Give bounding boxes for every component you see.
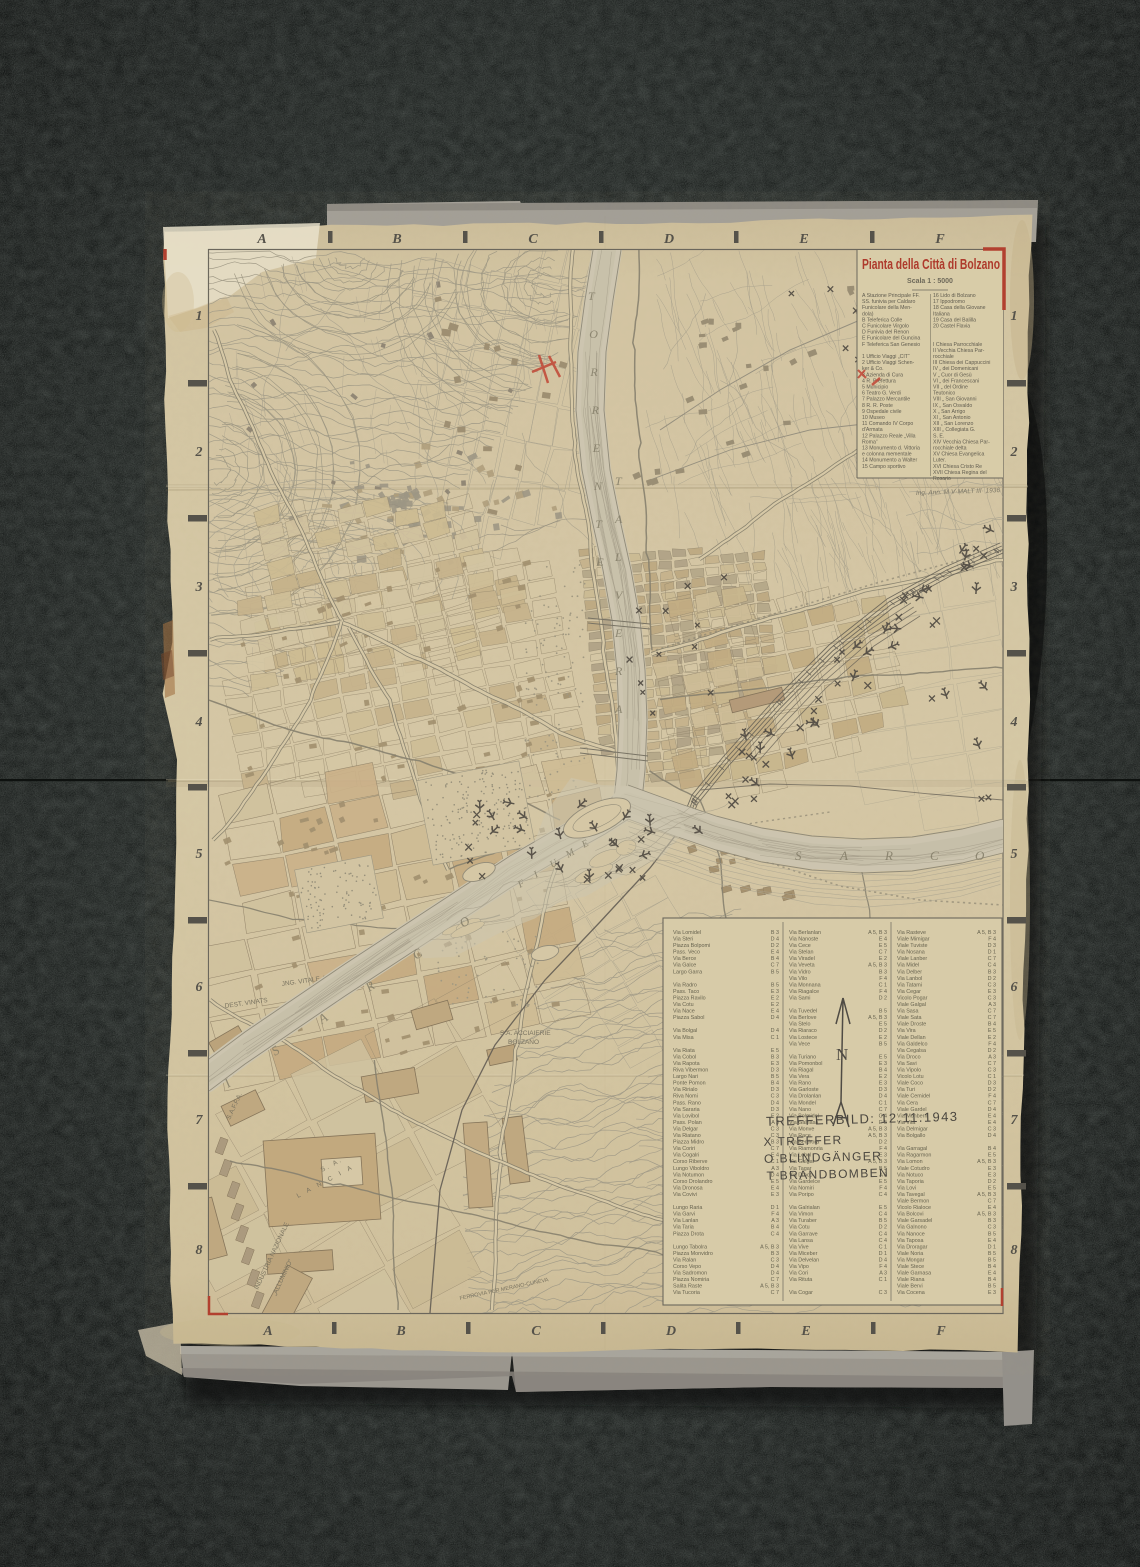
svg-text:C 1: C 1	[879, 982, 887, 988]
svg-text:Via Tucoria: Via Tucoria	[673, 1290, 700, 1296]
svg-text:D 2: D 2	[988, 1048, 996, 1054]
svg-text:E 5: E 5	[988, 1153, 996, 1159]
svg-text:C 4: C 4	[988, 963, 996, 969]
svg-text:Viale Lanber: Viale Lanber	[897, 956, 927, 962]
svg-text:Piazza Monvidro: Piazza Monvidro	[673, 1251, 713, 1257]
svg-text:E 3: E 3	[988, 1290, 996, 1296]
svg-text:Via Garvi: Via Garvi	[673, 1212, 695, 1218]
svg-text:D 1: D 1	[988, 1244, 996, 1250]
svg-text:2: 2	[1010, 445, 1018, 460]
svg-text:C 1: C 1	[879, 1100, 887, 1106]
svg-text:E 4: E 4	[771, 1185, 779, 1191]
svg-text:E 4: E 4	[988, 1205, 996, 1211]
svg-text:Via Veveta: Via Veveta	[789, 963, 815, 969]
svg-text:D 4: D 4	[771, 1015, 779, 1021]
svg-text:Via Lovibol: Via Lovibol	[673, 1113, 699, 1119]
svg-text:E 4: E 4	[988, 1120, 996, 1126]
svg-text:14 Monumento a Walter: 14 Monumento a Walter	[862, 458, 917, 464]
svg-text:Salita Raste: Salita Raste	[673, 1284, 702, 1290]
svg-text:Via Monnana: Via Monnana	[789, 982, 821, 988]
svg-text:6: 6	[1011, 980, 1018, 995]
svg-text:8: 8	[196, 1243, 203, 1258]
svg-text:A: A	[262, 1324, 272, 1339]
svg-text:Via Cogar: Via Cogar	[789, 1290, 813, 1296]
svg-text:Via Lostece: Via Lostece	[789, 1035, 817, 1041]
svg-text:E 3: E 3	[771, 1192, 779, 1198]
svg-text:B 5: B 5	[879, 1041, 887, 1047]
svg-text:1 Ufficio Viaggi „CIT“: 1 Ufficio Viaggi „CIT“	[862, 354, 910, 360]
svg-text:Funicolare della Men-: Funicolare della Men-	[862, 305, 912, 311]
svg-text:Via Steri: Via Steri	[673, 937, 693, 943]
svg-text:E 5: E 5	[879, 1205, 887, 1211]
svg-text:D 2: D 2	[988, 1087, 996, 1093]
svg-text:F 4: F 4	[771, 1212, 779, 1218]
svg-text:18 Casa della Giovane: 18 Casa della Giovane	[933, 305, 986, 311]
svg-text:E 3: E 3	[771, 1061, 779, 1067]
svg-text:Via Vipolo: Via Vipolo	[897, 1068, 921, 1074]
svg-text:Via Galnono: Via Galnono	[897, 1225, 927, 1231]
svg-text:D 4: D 4	[771, 1100, 779, 1106]
svg-text:Via Cobol: Via Cobol	[673, 1054, 696, 1060]
svg-text:C Funicolare Virgolo: C Funicolare Virgolo	[862, 324, 909, 330]
svg-text:D 2: D 2	[988, 976, 996, 982]
svg-text:Via Dronosa: Via Dronosa	[673, 1185, 703, 1191]
svg-text:D 1: D 1	[879, 1251, 887, 1257]
svg-text:Via Pomonbol: Via Pomonbol	[789, 1061, 822, 1067]
svg-text:D 1: D 1	[771, 1205, 779, 1211]
svg-text:Via Cocena: Via Cocena	[897, 1290, 925, 1296]
svg-text:Via Notumon: Via Notumon	[673, 1172, 704, 1178]
svg-text:Via Cegalsa: Via Cegalsa	[897, 1048, 926, 1054]
svg-text:Pass. Rano: Pass. Rano	[673, 1100, 701, 1106]
svg-text:9 Ospedale civile: 9 Ospedale civile	[862, 409, 902, 415]
svg-text:dola): dola)	[862, 311, 874, 317]
svg-text:C 1: C 1	[771, 1035, 779, 1041]
svg-text:C 7: C 7	[988, 1100, 996, 1106]
svg-text:Scala 1 : 5000: Scala 1 : 5000	[907, 278, 953, 285]
svg-text:Via Garragal: Via Garragal	[897, 1146, 927, 1152]
svg-text:Via Cori: Via Cori	[789, 1271, 808, 1277]
svg-text:Viale Dellan: Viale Dellan	[897, 1035, 926, 1041]
svg-text:D 2: D 2	[879, 1028, 887, 1034]
svg-text:Via Vece: Via Vece	[789, 1041, 810, 1047]
svg-text:XVII Chiesa Regina del: XVII Chiesa Regina del	[933, 470, 987, 476]
svg-text:D 2: D 2	[879, 1140, 887, 1146]
svg-text:C 7: C 7	[879, 950, 887, 956]
svg-text:A 5, B 3: A 5, B 3	[868, 963, 887, 969]
svg-text:Piazza Ravilo: Piazza Ravilo	[673, 996, 706, 1002]
svg-text:16 Lido di Bolzano: 16 Lido di Bolzano	[933, 293, 976, 299]
svg-text:D 2: D 2	[879, 1225, 887, 1231]
svg-text:Via Miceber: Via Miceber	[789, 1251, 818, 1257]
svg-text:Piazza Drota: Piazza Drota	[673, 1231, 704, 1237]
svg-text:III Chiesa dei Cappuccini: III Chiesa dei Cappuccini	[933, 360, 990, 366]
svg-text:I Chiesa Parrocchiale: I Chiesa Parrocchiale	[933, 342, 982, 348]
svg-text:Piazza Midro: Piazza Midro	[673, 1140, 704, 1146]
svg-text:E 4: E 4	[988, 1238, 996, 1244]
svg-text:D Funivia del Renon: D Funivia del Renon	[862, 330, 909, 336]
svg-text:Via Rapota: Via Rapota	[673, 1061, 700, 1067]
svg-text:Via Taria: Via Taria	[673, 1225, 694, 1231]
svg-text:A 5, B 3: A 5, B 3	[868, 1015, 887, 1021]
svg-text:F: F	[934, 232, 945, 247]
svg-text:C 7: C 7	[988, 956, 996, 962]
svg-text:XIV Vecchia Chiesa Par-: XIV Vecchia Chiesa Par-	[933, 439, 990, 445]
svg-text:Via Lanlan: Via Lanlan	[673, 1218, 698, 1224]
svg-text:Via Rano: Via Rano	[789, 1081, 811, 1087]
svg-text:F 4: F 4	[988, 1094, 996, 1100]
svg-text:8: 8	[1011, 1243, 1018, 1258]
svg-text:5 Municipio: 5 Municipio	[862, 385, 888, 391]
svg-text:C: C	[528, 232, 538, 247]
svg-text:XV Chiesa Evangelica: XV Chiesa Evangelica	[933, 452, 984, 458]
svg-text:D 4: D 4	[879, 1258, 887, 1264]
svg-text:2: 2	[195, 445, 203, 460]
svg-text:Via Vimon: Via Vimon	[789, 1212, 813, 1218]
svg-text:E: E	[798, 232, 808, 247]
svg-text:C 3: C 3	[988, 1127, 996, 1133]
svg-text:Via Delgar: Via Delgar	[673, 1127, 698, 1133]
svg-text:Via Vipo: Via Vipo	[789, 1264, 809, 1270]
svg-text:Riva Vibermon: Riva Vibermon	[673, 1068, 708, 1074]
svg-text:Via Ralan: Via Ralan	[673, 1258, 696, 1264]
svg-text:C 3: C 3	[771, 1094, 779, 1100]
svg-text:E 4: E 4	[988, 1271, 996, 1277]
svg-text:Viale Cotudro: Viale Cotudro	[897, 1166, 930, 1172]
svg-text:D 2: D 2	[879, 996, 887, 1002]
svg-text:2 Ufficio Viaggi Schen-: 2 Ufficio Viaggi Schen-	[862, 360, 915, 366]
svg-text:S. E.: S. E.	[933, 433, 944, 439]
svg-text:E 3: E 3	[879, 1081, 887, 1087]
svg-text:E: E	[800, 1324, 810, 1339]
svg-text:Via Vilo: Via Vilo	[789, 976, 807, 982]
svg-text:4: 4	[195, 715, 203, 730]
svg-text:Via Lomidel: Via Lomidel	[673, 930, 701, 936]
svg-text:Via Savi: Via Savi	[897, 1061, 917, 1067]
svg-text:C: C	[531, 1324, 541, 1339]
svg-text:Via Galrialan: Via Galrialan	[789, 1205, 820, 1211]
svg-text:Corso Vepo: Corso Vepo	[673, 1264, 701, 1270]
svg-text:XVI Chiesa Cristo Re: XVI Chiesa Cristo Re	[933, 464, 982, 470]
svg-text:Via Rasteve: Via Rasteve	[897, 930, 926, 936]
svg-text:Via Berlove: Via Berlove	[789, 1015, 816, 1021]
svg-text:Via Ragarmon: Via Ragarmon	[897, 1153, 931, 1159]
svg-text:Via Riaraco: Via Riaraco	[789, 1028, 817, 1034]
svg-text:C 3: C 3	[771, 1258, 779, 1264]
svg-text:Via Cogalri: Via Cogalri	[673, 1153, 699, 1159]
svg-text:20 Castel Flavia: 20 Castel Flavia	[933, 324, 970, 330]
svg-text:Via Mongar: Via Mongar	[897, 1258, 925, 1264]
svg-text:B 5: B 5	[879, 1009, 887, 1015]
svg-text:Lungo Raria: Lungo Raria	[673, 1205, 702, 1211]
svg-text:SS. funivia per Caldaro: SS. funivia per Caldaro	[862, 299, 915, 305]
svg-text:C 4: C 4	[879, 1212, 887, 1218]
svg-text:Via Sami: Via Sami	[789, 996, 810, 1002]
svg-text:E 2: E 2	[771, 1002, 779, 1008]
svg-text:Via Taporia: Via Taporia	[897, 1179, 924, 1185]
svg-text:Via Lanbol: Via Lanbol	[897, 976, 922, 982]
svg-text:C 3: C 3	[879, 1290, 887, 1296]
svg-text:Via Lovi: Via Lovi	[897, 1185, 916, 1191]
svg-text:VIII „ San Giovanni: VIII „ San Giovanni	[933, 397, 977, 403]
svg-text:3: 3	[1010, 580, 1018, 595]
svg-text:B 3: B 3	[988, 969, 996, 975]
svg-text:rocchiale delta: rocchiale delta	[933, 446, 967, 452]
svg-text:Via Vera: Via Vera	[789, 1074, 809, 1080]
svg-text:C 3: C 3	[988, 996, 996, 1002]
svg-text:C 7: C 7	[988, 1009, 996, 1015]
svg-text:B 5: B 5	[771, 982, 779, 988]
svg-text:Via Coriri: Via Coriri	[673, 1146, 695, 1152]
svg-text:Via Cotu: Via Cotu	[673, 1002, 694, 1008]
svg-text:Viale Garnasa: Viale Garnasa	[897, 1271, 931, 1277]
svg-text:3: 3	[195, 580, 203, 595]
svg-text:11 Comando IV Corpo: 11 Comando IV Corpo	[862, 421, 913, 427]
svg-text:E 5: E 5	[988, 1028, 996, 1034]
svg-text:Via Delmigar: Via Delmigar	[897, 1127, 928, 1133]
svg-text:A 3: A 3	[771, 1218, 779, 1224]
svg-text:19 Casa del Balilla: 19 Casa del Balilla	[933, 317, 976, 323]
svg-text:A Stazione Principale FF.: A Stazione Principale FF.	[862, 293, 920, 299]
svg-text:B 4: B 4	[771, 1225, 779, 1231]
svg-text:rocchiale: rocchiale	[933, 354, 954, 360]
svg-text:D 1: D 1	[988, 950, 996, 956]
svg-text:D: D	[663, 232, 674, 247]
svg-text:Via Nosana: Via Nosana	[897, 950, 925, 956]
svg-text:E 5: E 5	[988, 1185, 996, 1191]
svg-text:F 4: F 4	[879, 1185, 887, 1191]
svg-text:Via Garrave: Via Garrave	[789, 1231, 818, 1237]
svg-text:Largo Nari: Largo Nari	[673, 1074, 698, 1080]
svg-text:17 Ippodromo: 17 Ippodromo	[933, 299, 965, 305]
svg-text:Viale Bervi: Viale Bervi	[897, 1284, 923, 1290]
svg-text:Vicolo Pogar: Vicolo Pogar	[897, 996, 928, 1002]
svg-text:D 2: D 2	[988, 1179, 996, 1185]
svg-text:Via Sadromon: Via Sadromon	[673, 1271, 707, 1277]
svg-text:C 7: C 7	[988, 1015, 996, 1021]
svg-text:Via Riagalce: Via Riagalce	[789, 989, 819, 995]
svg-text:A 5, B 3: A 5, B 3	[760, 1244, 779, 1250]
svg-text:5: 5	[196, 847, 203, 862]
svg-text:E 2: E 2	[879, 1035, 887, 1041]
svg-text:Viale Noria: Viale Noria	[897, 1251, 923, 1257]
svg-text:Luter.: Luter.	[933, 458, 946, 464]
svg-text:Viale Garsadel: Viale Garsadel	[897, 1218, 932, 1224]
svg-text:Via Stelo: Via Stelo	[789, 1022, 810, 1028]
svg-text:B 5: B 5	[879, 1218, 887, 1224]
svg-text:A 5, B 3: A 5, B 3	[868, 1127, 887, 1133]
svg-text:C 7: C 7	[771, 1290, 779, 1296]
svg-text:Via Sararia: Via Sararia	[673, 1107, 700, 1113]
svg-text:D 3: D 3	[988, 943, 996, 949]
svg-text:D 3: D 3	[771, 1107, 779, 1113]
svg-text:Via Nanoce: Via Nanoce	[897, 1231, 925, 1237]
svg-text:Lungo Tabolra: Lungo Tabolra	[673, 1244, 707, 1250]
svg-text:E 2: E 2	[879, 956, 887, 962]
svg-text:6: 6	[196, 980, 203, 995]
svg-text:8 R. R. Poste: 8 R. R. Poste	[862, 403, 893, 409]
svg-text:A 3: A 3	[879, 1271, 887, 1277]
svg-text:F 4: F 4	[988, 937, 996, 943]
svg-text:A 5, B 3: A 5, B 3	[868, 930, 887, 936]
svg-text:C 7: C 7	[988, 1061, 996, 1067]
svg-text:E 5: E 5	[879, 1022, 887, 1028]
svg-text:E 5: E 5	[879, 1054, 887, 1060]
svg-text:Piazza Bolpomi: Piazza Bolpomi	[673, 943, 710, 949]
svg-text:Pianta della Città di Bolzano: Pianta della Città di Bolzano	[862, 256, 1000, 273]
svg-text:Via Tatami: Via Tatami	[897, 982, 922, 988]
svg-text:B 4: B 4	[988, 1022, 996, 1028]
svg-text:D 4: D 4	[988, 1133, 996, 1139]
svg-text:E 5: E 5	[771, 1048, 779, 1054]
svg-text:B 5: B 5	[771, 969, 779, 975]
svg-text:Via Viradel: Via Viradel	[789, 956, 815, 962]
svg-text:A 3: A 3	[988, 1002, 996, 1008]
svg-text:D 4: D 4	[771, 1264, 779, 1270]
svg-text:N: N	[836, 1045, 848, 1064]
svg-text:Via Taposa: Via Taposa	[897, 1238, 923, 1244]
svg-text:Viale Galgal: Viale Galgal	[897, 1002, 926, 1008]
svg-text:Via Riatano: Via Riatano	[673, 1133, 701, 1139]
svg-text:B 3: B 3	[879, 969, 887, 975]
svg-text:V „ Cuor di Gesù: V „ Cuor di Gesù	[933, 372, 972, 378]
svg-text:7: 7	[196, 1113, 204, 1128]
svg-text:E 4: E 4	[771, 1009, 779, 1015]
svg-text:Ponte Pomon: Ponte Pomon	[673, 1081, 706, 1087]
svg-text:Via Berlanlan: Via Berlanlan	[789, 930, 821, 936]
svg-text:A 5, B 3: A 5, B 3	[868, 1133, 887, 1139]
svg-text:Via Cece: Via Cece	[789, 943, 811, 949]
svg-text:Piazza Nomiria: Piazza Nomiria	[673, 1277, 709, 1283]
svg-text:D 4: D 4	[771, 937, 779, 943]
svg-text:VII „ del Ordine: VII „ del Ordine	[933, 385, 968, 391]
svg-text:Via Bolgal: Via Bolgal	[673, 1028, 697, 1034]
svg-text:Pass. Veco: Pass. Veco	[673, 950, 700, 956]
svg-text:D: D	[665, 1324, 676, 1339]
svg-text:Via Cotu: Via Cotu	[789, 1225, 810, 1231]
svg-text:E 2: E 2	[988, 1035, 996, 1041]
svg-text:Roma“: Roma“	[862, 439, 878, 445]
svg-text:Largo Garra: Largo Garra	[673, 969, 702, 975]
svg-text:IV „ dei Domenicani: IV „ dei Domenicani	[933, 366, 978, 372]
svg-text:7 Palazzo Mercantile: 7 Palazzo Mercantile	[862, 397, 910, 403]
svg-text:C 3: C 3	[988, 982, 996, 988]
svg-text:B 5: B 5	[988, 1231, 996, 1237]
svg-text:Lungo Viboldro: Lungo Viboldro	[673, 1166, 709, 1172]
svg-text:Via Droragar: Via Droragar	[897, 1244, 928, 1250]
svg-text:Viale Bermon: Viale Bermon	[897, 1199, 929, 1205]
svg-text:Via Garloste: Via Garloste	[789, 1087, 819, 1093]
svg-text:C 3: C 3	[988, 1068, 996, 1074]
svg-text:B 5: B 5	[988, 1284, 996, 1290]
svg-text:B 5: B 5	[988, 1251, 996, 1257]
svg-text:Vicolo Rialoce: Vicolo Rialoce	[897, 1205, 931, 1211]
svg-text:E 2: E 2	[879, 1074, 887, 1080]
svg-text:E 4: E 4	[771, 950, 779, 956]
svg-text:Viale Mimigar: Viale Mimigar	[897, 937, 930, 943]
svg-text:Viale Droste: Viale Droste	[897, 1022, 926, 1028]
svg-text:B: B	[395, 1324, 405, 1339]
svg-text:Via Misa: Via Misa	[673, 1035, 694, 1041]
svg-text:A 5, B 3: A 5, B 3	[977, 1159, 996, 1165]
svg-text:Via Turiano: Via Turiano	[789, 1054, 816, 1060]
svg-text:C 7: C 7	[771, 963, 779, 969]
svg-text:E 5: E 5	[879, 943, 887, 949]
svg-text:Via Lansa: Via Lansa	[789, 1238, 813, 1244]
svg-text:Viale Coco: Viale Coco	[897, 1081, 923, 1087]
svg-text:Corso Riberve: Corso Riberve	[673, 1159, 707, 1165]
svg-text:Via Drolanlan: Via Drolanlan	[789, 1094, 821, 1100]
svg-text:IX „ San Osvaldo: IX „ San Osvaldo	[933, 403, 972, 409]
svg-text:E Funicolare del Guncina: E Funicolare del Guncina	[862, 336, 920, 342]
svg-text:Corso Drolandro: Corso Drolandro	[673, 1179, 713, 1185]
svg-text:Via Cegar: Via Cegar	[897, 989, 921, 995]
svg-text:Via Radro: Via Radro	[673, 982, 697, 988]
svg-text:Via Nomiri: Via Nomiri	[789, 1185, 814, 1191]
svg-text:Via Droco: Via Droco	[897, 1054, 921, 1060]
svg-text:F Teleferica San Genesio: F Teleferica San Genesio	[862, 342, 920, 348]
svg-text:Via Rituta: Via Rituta	[789, 1277, 812, 1283]
svg-text:F 4: F 4	[988, 1041, 996, 1047]
svg-text:Via Tavegal: Via Tavegal	[897, 1192, 925, 1198]
svg-text:E 3: E 3	[988, 989, 996, 995]
svg-text:Viale Riana: Viale Riana	[897, 1277, 924, 1283]
svg-text:B 3: B 3	[988, 1218, 996, 1224]
svg-text:B 3: B 3	[771, 930, 779, 936]
svg-text:D 3: D 3	[771, 1068, 779, 1074]
svg-text:F 4: F 4	[879, 976, 887, 982]
svg-text:XIII „ Collegiata G.: XIII „ Collegiata G.	[933, 427, 975, 433]
svg-text:Via Ririalo: Via Ririalo	[673, 1087, 697, 1093]
svg-text:Rosario: Rosario	[933, 476, 951, 482]
svg-text:B 5: B 5	[988, 1258, 996, 1264]
svg-text:XI „ San Antonio: XI „ San Antonio	[933, 415, 971, 421]
svg-text:Via Mondel: Via Mondel	[789, 1100, 816, 1106]
svg-text:Via Sasa: Via Sasa	[897, 1009, 918, 1015]
svg-text:Via Covivi: Via Covivi	[673, 1192, 697, 1198]
svg-text:D 4: D 4	[771, 1271, 779, 1277]
svg-text:E 2: E 2	[771, 996, 779, 1002]
svg-text:13 Monumento d. Vittoria: 13 Monumento d. Vittoria	[862, 446, 920, 452]
svg-text:6 Teatro G. Verdi: 6 Teatro G. Verdi	[862, 391, 901, 397]
svg-text:E 3: E 3	[988, 1166, 996, 1172]
svg-text:A 3: A 3	[988, 1054, 996, 1060]
svg-text:C 1: C 1	[879, 1277, 887, 1283]
svg-text:B 4: B 4	[879, 1068, 887, 1074]
svg-text:E 4: E 4	[988, 1113, 996, 1119]
svg-text:B 4: B 4	[771, 956, 779, 962]
svg-text:Via Bolcovi: Via Bolcovi	[897, 1212, 924, 1218]
svg-text:Via Lomon: Via Lomon	[897, 1159, 923, 1165]
svg-text:e colonna mementale: e colonna mementale	[862, 452, 912, 458]
svg-text:4: 4	[1010, 715, 1018, 730]
svg-text:D 2: D 2	[771, 943, 779, 949]
svg-text:Via Nanoste: Via Nanoste	[789, 937, 818, 943]
svg-text:A: A	[256, 232, 266, 247]
svg-text:1: 1	[196, 309, 203, 324]
svg-text:Riva Nomi: Riva Nomi	[673, 1094, 698, 1100]
svg-text:E 3: E 3	[771, 989, 779, 995]
svg-text:5: 5	[1011, 847, 1018, 862]
svg-text:Piazza Sabol: Piazza Sabol	[673, 1015, 704, 1021]
svg-text:Via Notuco: Via Notuco	[897, 1172, 923, 1178]
svg-text:F 4: F 4	[879, 989, 887, 995]
svg-text:C 7: C 7	[771, 1277, 779, 1283]
svg-text:B 4: B 4	[988, 1264, 996, 1270]
svg-text:A 5, B 3: A 5, B 3	[977, 930, 996, 936]
svg-text:Via Delvelan: Via Delvelan	[789, 1258, 819, 1264]
svg-text:B 3: B 3	[771, 1251, 779, 1257]
